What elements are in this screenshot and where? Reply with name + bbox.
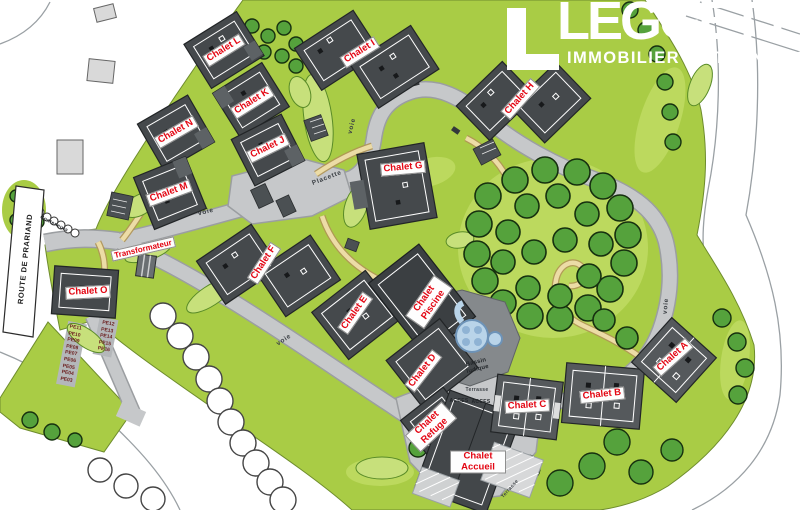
site-plan: Chalet A Chalet B Chalet C Chalet D Chal… <box>0 0 800 510</box>
label-chalet-accueil: Chalet Accueil <box>450 451 506 474</box>
label-acces-1: ACCES <box>449 398 468 404</box>
label-chalet-c: Chalet C <box>504 399 549 414</box>
logo-tagline: IMMOBILIER INTERNATIONAL <box>567 49 800 68</box>
leggett-logo: LEGGETT IMMOBILIER INTERNATIONAL <box>505 2 800 88</box>
logo-brand: LEGGETT <box>557 0 791 52</box>
label-terrasse-1: Terrasse <box>466 387 489 393</box>
label-acces-2: ACCES <box>471 399 490 405</box>
label-chalet-o: Chalet O <box>65 285 111 300</box>
label-voie-4: voie <box>662 298 670 315</box>
leggett-l-mark <box>505 8 559 74</box>
building-transformateur <box>136 254 157 278</box>
